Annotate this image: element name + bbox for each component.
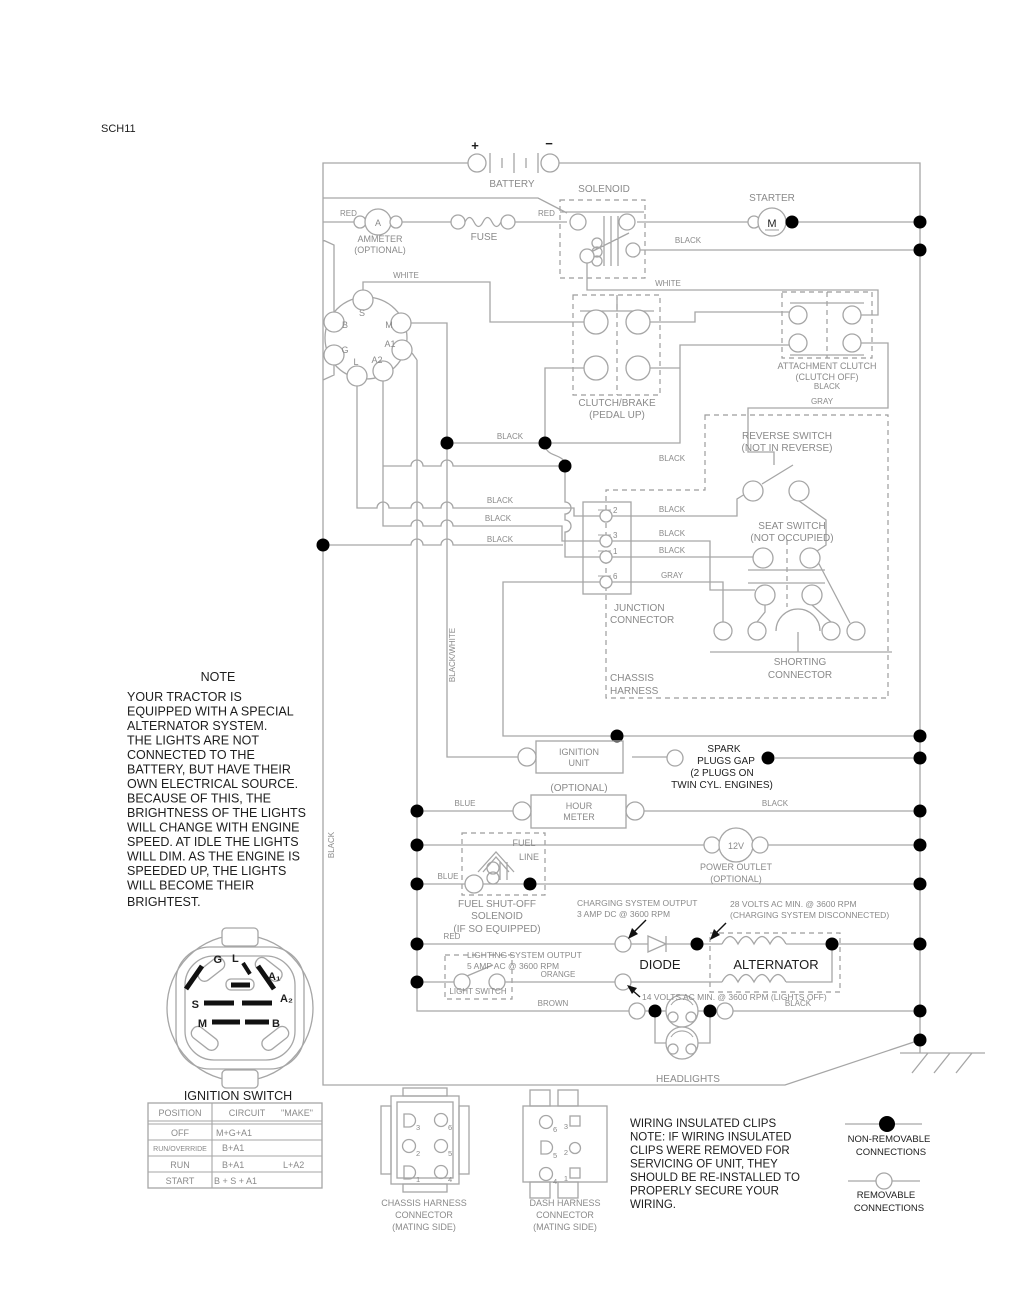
clutch-brake-contact [626,356,650,380]
ignition-top-terminal-labels: S B M A1 G A2 L [341,308,395,367]
pin-round [435,1166,448,1179]
connector-body [391,1096,459,1184]
fuse-label: FUSE [471,232,498,243]
reverse-switch-label: REVERSE SWITCH [742,431,832,442]
terminal-letter-s: S [359,308,365,318]
seat-switch-label: SEAT SWITCH [758,521,825,532]
terminal-letter-a1: A1 [384,339,395,349]
clutch-brake-label: CLUTCH/BRAKE [578,398,656,409]
junction-dot [411,878,424,891]
connector-rail [381,1106,391,1174]
pin-number: 3 [564,1122,568,1131]
power-outlet-terminal [704,837,720,853]
pin-number: 5 [448,1149,452,1158]
table-cell-position: RUN [170,1160,190,1170]
ignition-terminal-l [347,366,367,386]
attachment-clutch-state-label: (CLUTCH OFF) [796,372,859,382]
battery-positive-terminal [468,154,486,172]
attachment-clutch-contact [843,334,861,352]
dash-connector-caption2: CONNECTOR [536,1210,594,1220]
clutch-brake-state-label: (PEDAL UP) [589,410,645,421]
note-line: WILL CHANGE WITH ENGINE [127,821,299,835]
bulb-contact [668,1044,678,1054]
note-line: BECAUSE OF THIS, THE [127,792,271,806]
pin-round [540,1168,553,1181]
wire-label: BLUE [455,799,476,808]
fuel-solenoid-terminal [465,875,483,893]
junction-dot [914,878,927,891]
fuel-solenoid-label: FUEL SHUT-OFF [458,899,536,910]
dash-connector-caption3: (MATING SIDE) [533,1222,597,1232]
junction-dot [914,216,927,229]
chassis-connector-caption3: (MATING SIDE) [392,1222,456,1232]
bulb-contact [686,1044,696,1054]
pin-number: 2 [416,1149,420,1158]
reverse-switch-state-label: (NOT IN REVERSE) [742,443,833,454]
wire-label: BLACK [659,505,686,514]
junction-dot [826,938,839,951]
ignition-unit-label2: UNIT [569,758,590,768]
battery-minus-sign: − [545,136,553,151]
chassis-harness-connector: 3 2 1 6 5 4 CHASSIS HARNESS CONNECTOR (M… [381,1088,469,1232]
junction-dot [914,1034,927,1047]
spark-plugs-label4: TWIN CYL. ENGINES) [671,780,773,791]
ammeter-optional-label: (OPTIONAL) [354,245,406,255]
wire-label: WHITE [393,271,419,280]
wire-label: ORANGE [541,970,576,979]
wire-label-vertical: BLACK/WHITE [448,628,457,682]
junction-pin-1 [600,551,612,563]
junction-dot [524,878,537,891]
starter-motor-letter: M [767,218,776,230]
note-line: YOUR TRACTOR IS [127,690,242,704]
light-switch-label: LIGHT SWITCH [449,987,506,996]
pin-round [435,1140,448,1153]
wire-label: BLACK [762,799,789,808]
wire-label: GRAY [811,397,834,406]
hour-meter-terminal [626,802,644,820]
ignition-unit-terminal [518,748,536,766]
volts28-note2: (CHARGING SYSTEM DISCONNECTED) [730,910,889,920]
terminal-letter-g: G [341,345,348,355]
note-block: NOTE YOUR TRACTOR IS EQUIPPED WITH A SPE… [127,670,306,909]
face-label-a2: A₂ [280,993,293,1005]
junction-dot [762,752,775,765]
junction-dot [411,805,424,818]
solenoid-terminal [570,214,586,230]
note-line: BATTERY, BUT HAVE THEIR [127,763,291,777]
connector-tab [403,1088,447,1096]
seat-switch-contact [753,548,773,568]
power-outlet-label: POWER OUTLET [700,862,773,872]
terminal-bar-l [243,963,250,974]
pin-number: 5 [553,1151,557,1160]
junction-dot [914,244,927,257]
face-label-a1: A₁ [268,971,281,983]
clips-note-line: SHOULD BE RE-INSTALLED TO [630,1172,800,1184]
non-removable-symbol [879,1116,895,1132]
connector-tab [530,1182,550,1198]
junction-dot [411,976,424,989]
chassis-harness-label2: HARNESS [610,686,659,697]
junction-pin-3 [600,535,612,547]
dash-harness-connector: 6 5 4 3 2 1 DASH HARNESS CONNECTOR (MATI… [523,1090,607,1232]
wire-label: BLACK [659,454,686,463]
terminal-letter-b: B [342,320,348,330]
connection-legend: NON-REMOVABLE CONNECTIONS REMOVABLE CONN… [848,1116,931,1214]
solenoid-label: SOLENOID [578,184,630,195]
note-line: CONNECTED TO THE [127,748,255,762]
junction-dot [411,938,424,951]
table-header-position: POSITION [158,1108,201,1118]
hour-meter-optional-label: (OPTIONAL) [550,783,607,794]
note-line: BRIGHTEST. [127,895,201,909]
pin-number: 1 [564,1174,568,1183]
clips-note-line: WIRING. [630,1199,676,1211]
schematic-page: RED RED BLACK WHITE WHITE BLACK GRAY BLA… [0,0,1024,1316]
pin-round [570,1143,581,1154]
junction-dot [441,437,454,450]
chassis-harness-label: CHASSIS [610,673,654,684]
wire-label: BLACK [814,382,841,391]
terminal-letter-l: L [353,357,358,367]
reverse-switch-contact [743,481,763,501]
note-line: ALTERNATOR SYSTEM. [127,719,267,733]
pin-d-shape [404,1166,416,1179]
lighting-output-note2: 5 AMP AC @ 3600 RPM [467,961,559,971]
note-line: OWN ELECTRICAL SOURCE. [127,777,298,791]
headlights-label: HEADLIGHTS [656,1074,720,1085]
seat-switch-contact [755,585,775,605]
table-cell-position: RUN/OVERRIDE [153,1146,207,1153]
junction-pin-numbers: 2 3 1 6 [613,506,618,581]
table-cell-make: B+A1 [222,1160,244,1170]
pin-number: 2 [564,1148,568,1157]
terminal-bar-g [186,966,202,989]
pin-number: 3 [416,1123,420,1132]
fuel-solenoid-label3: (IF SO EQUIPPED) [453,924,540,935]
clips-note-line: PROPERLY SECURE YOUR [630,1186,779,1198]
ignition-terminal-m [391,313,411,333]
solenoid-contact [580,249,594,263]
wire-label: BLACK [659,529,686,538]
connector-tab [558,1090,578,1106]
alternator-label: ALTERNATOR [733,957,818,972]
sheet-label: SCH11 [101,123,136,135]
connector-rail [459,1106,469,1174]
pin-number: 4 [448,1175,452,1184]
connector-tab [530,1090,550,1106]
connector-body [523,1106,607,1182]
terminal-letter-m: M [385,320,393,330]
junction-dot [914,805,927,818]
battery-plus-sign: + [471,138,479,153]
chassis-connector-caption: CHASSIS HARNESS [381,1198,467,1208]
volts28-note: 28 VOLTS AC MIN. @ 3600 RPM [730,899,857,909]
charging-output-note: CHARGING SYSTEM OUTPUT [577,898,697,908]
table-cell-make: B + S + A1 [214,1176,257,1186]
shorting-connector-pin [847,622,865,640]
hour-meter-label2: METER [563,812,595,822]
table-cell-make: B+A1 [222,1143,244,1153]
wiring-diagram: RED RED BLACK WHITE WHITE BLACK GRAY BLA… [0,0,1024,1316]
switch-outer-ring [167,935,313,1081]
ignition-table: POSITION CIRCUIT "MAKE" OFF M+G+A1 RUN/O… [148,1103,322,1188]
attachment-clutch-contact [789,334,807,352]
attachment-clutch-contact [843,306,861,324]
pin-round [540,1116,553,1129]
solenoid-contact [626,243,640,257]
note-line: WILL DIM. AS THE ENGINE IS [127,850,300,864]
seat-switch-state-label: (NOT OCCUPIED) [750,533,833,544]
face-label-g: G [213,954,222,966]
junction-dot [411,839,424,852]
ignition-unit-box [536,741,623,773]
spark-plugs-label3: (2 PLUGS ON [690,768,753,779]
pin-d-shape [404,1114,416,1127]
lighting-output-note: LIGHTING SYSTEM OUTPUT [467,950,582,960]
clutch-brake-contact [584,356,608,380]
ignition-switch-caption: IGNITION SWITCH [184,1089,292,1103]
pin-square [570,1168,580,1178]
hour-meter-label: HOUR [566,801,593,811]
wire-label: BLACK [487,496,514,505]
ammeter-letter: A [375,218,381,228]
wire-label: BLACK [485,514,512,523]
note-line: EQUIPPED WITH A SPECIAL [127,705,294,719]
junction-pin-number: 3 [613,531,618,540]
pin-number: 6 [448,1123,452,1132]
note-title: NOTE [201,670,236,684]
shorting-connector-label: SHORTING [774,657,827,668]
junction-dot [914,1005,927,1018]
bulb-contact [686,1012,696,1022]
clips-note-line: SERVICING OF UNIT, THEY [630,1159,778,1171]
junction-dot [914,938,927,951]
junction-pin-number: 6 [613,572,618,581]
junction-dot [704,1005,717,1018]
face-label-m: M [198,1018,207,1030]
table-header-make: "MAKE" [281,1108,313,1118]
bulb-contact [668,1012,678,1022]
spark-plug-terminal [667,750,683,766]
legend-removable-label2: CONNECTIONS [854,1203,924,1214]
pin-number: 6 [553,1125,557,1134]
dash-connector-caption: DASH HARNESS [529,1198,600,1208]
wire-label-vertical: BLACK [327,831,336,858]
shorting-connector-label2: CONNECTOR [768,670,832,681]
junction-dot [691,938,704,951]
headlight-terminal [717,1003,733,1019]
wire-label: GRAY [661,571,684,580]
switch-tab-bottom [222,1070,258,1088]
pin-d-shape [541,1141,553,1154]
note-line: SPEED. AT IDLE THE LIGHTS [127,835,299,849]
legend-removable-label: REMOVABLE [857,1190,915,1201]
wire-label: WHITE [655,279,681,288]
junction-dot [539,437,552,450]
table-cell-make2: L+A2 [283,1160,304,1170]
ammeter-label: AMMETER [358,234,404,244]
attachment-clutch-contact [789,306,807,324]
pin-round [403,1140,416,1153]
legend-nonremovable-label: NON-REMOVABLE [848,1134,931,1145]
clutch-brake-contact [584,310,608,334]
wire-label: BROWN [538,999,569,1008]
table-cell-make: M+G+A1 [216,1128,252,1138]
attachment-clutch-label: ATTACHMENT CLUTCH [778,361,877,371]
table-header-circuit: CIRCUIT [229,1108,266,1118]
removable-symbol [876,1173,892,1189]
pin-number: 4 [553,1177,557,1186]
wire-label: BLUE [438,872,459,881]
note-line: WILL BECOME THEIR [127,879,254,893]
face-label-s: S [192,999,199,1011]
junction-dot [649,1005,662,1018]
wiring-clips-note: WIRING INSULATED CLIPS NOTE: IF WIRING I… [630,1118,800,1211]
ignition-switch-face: G L A₁ A₂ S M B IGNITION SWITCH [167,928,313,1103]
reverse-switch-contact [789,481,809,501]
diode-symbol [648,936,666,952]
junction-dot [786,216,799,229]
junction-connector-label: JUNCTION [614,603,665,614]
terminal [390,216,402,228]
battery-negative-terminal [541,154,559,172]
junction-pin-number: 1 [613,547,618,556]
wire-label: BLACK [675,236,702,245]
ignition-unit-label: IGNITION [559,747,599,757]
note-line: BRIGHTNESS OF THE LIGHTS [127,806,306,820]
switch-tab-top [222,928,258,946]
seat-switch-contact [800,548,820,568]
junction-pin-6 [600,576,612,588]
shorting-connector-pin [822,622,840,640]
wire-label: BLACK [497,432,524,441]
junction-dot [317,539,330,552]
shorting-connector-pin [748,622,766,640]
fuse-terminal [451,215,465,229]
headlight-terminal [629,1003,645,1019]
pin-number: 1 [416,1175,420,1184]
volts14-note: 14 VOLTS AC MIN. @ 3600 RPM (LIGHTS OFF) [642,992,827,1002]
fuel-line-label: FUEL [512,838,535,848]
chassis-connector-caption2: CONNECTOR [395,1210,453,1220]
connector-tab [558,1182,578,1198]
junction-dot [559,460,572,473]
clips-note-line: WIRING INSULATED CLIPS [630,1118,776,1130]
pin-round [435,1114,448,1127]
junction-dot [914,730,927,743]
wire-label: RED [538,209,555,218]
wire-label: RED [340,209,357,218]
power-outlet-optional-label: (OPTIONAL) [710,874,762,884]
junction-pin-2 [600,510,612,522]
table-cell-position: START [166,1176,195,1186]
shorting-connector-pin [714,622,732,640]
spark-plugs-label2: PLUGS GAP [697,756,755,767]
wire-label: BLACK [487,535,514,544]
hour-meter-terminal [513,802,531,820]
note-line: THE LIGHTS ARE NOT [127,734,259,748]
face-label-b: B [272,1018,280,1030]
battery-label: BATTERY [489,179,535,190]
junction-dot [914,839,927,852]
clips-note-line: CLIPS WERE REMOVED FOR [630,1145,790,1157]
junction-pin-number: 2 [613,506,618,515]
wire-label: BLACK [659,546,686,555]
power-outlet-voltage: 12V [728,841,744,851]
seat-switch-contact [802,585,822,605]
circuit-wires [323,153,985,1181]
charging-output-note2: 3 AMP DC @ 3600 RPM [577,909,670,919]
ignition-terminal-s [353,290,373,310]
solenoid-terminal [619,214,635,230]
note-line: SPEEDED UP, THE LIGHTS [127,864,286,878]
power-outlet-terminal [752,837,768,853]
fuse-terminal [501,215,515,229]
table-cell-position: OFF [171,1128,189,1138]
starter-label: STARTER [749,193,795,204]
fuel-solenoid-label2: SOLENOID [471,911,523,922]
junction-dot [914,752,927,765]
fuel-line-label2: LINE [519,852,539,862]
junction-connector-label2: CONNECTOR [610,615,674,626]
clutch-brake-contact [626,310,650,334]
legend-nonremovable-label2: CONNECTIONS [856,1147,926,1158]
clips-note-line: NOTE: IF WIRING INSULATED [630,1132,791,1144]
face-label-l: L [232,953,239,965]
spark-plugs-label: SPARK [707,744,740,755]
diode-label: DIODE [639,957,681,972]
output-annotations: CHARGING SYSTEM OUTPUT 3 AMP DC @ 3600 R… [467,898,889,1002]
connector-tab [403,1184,447,1192]
terminal-letter-a2: A2 [371,355,382,365]
pin-square [570,1116,580,1126]
